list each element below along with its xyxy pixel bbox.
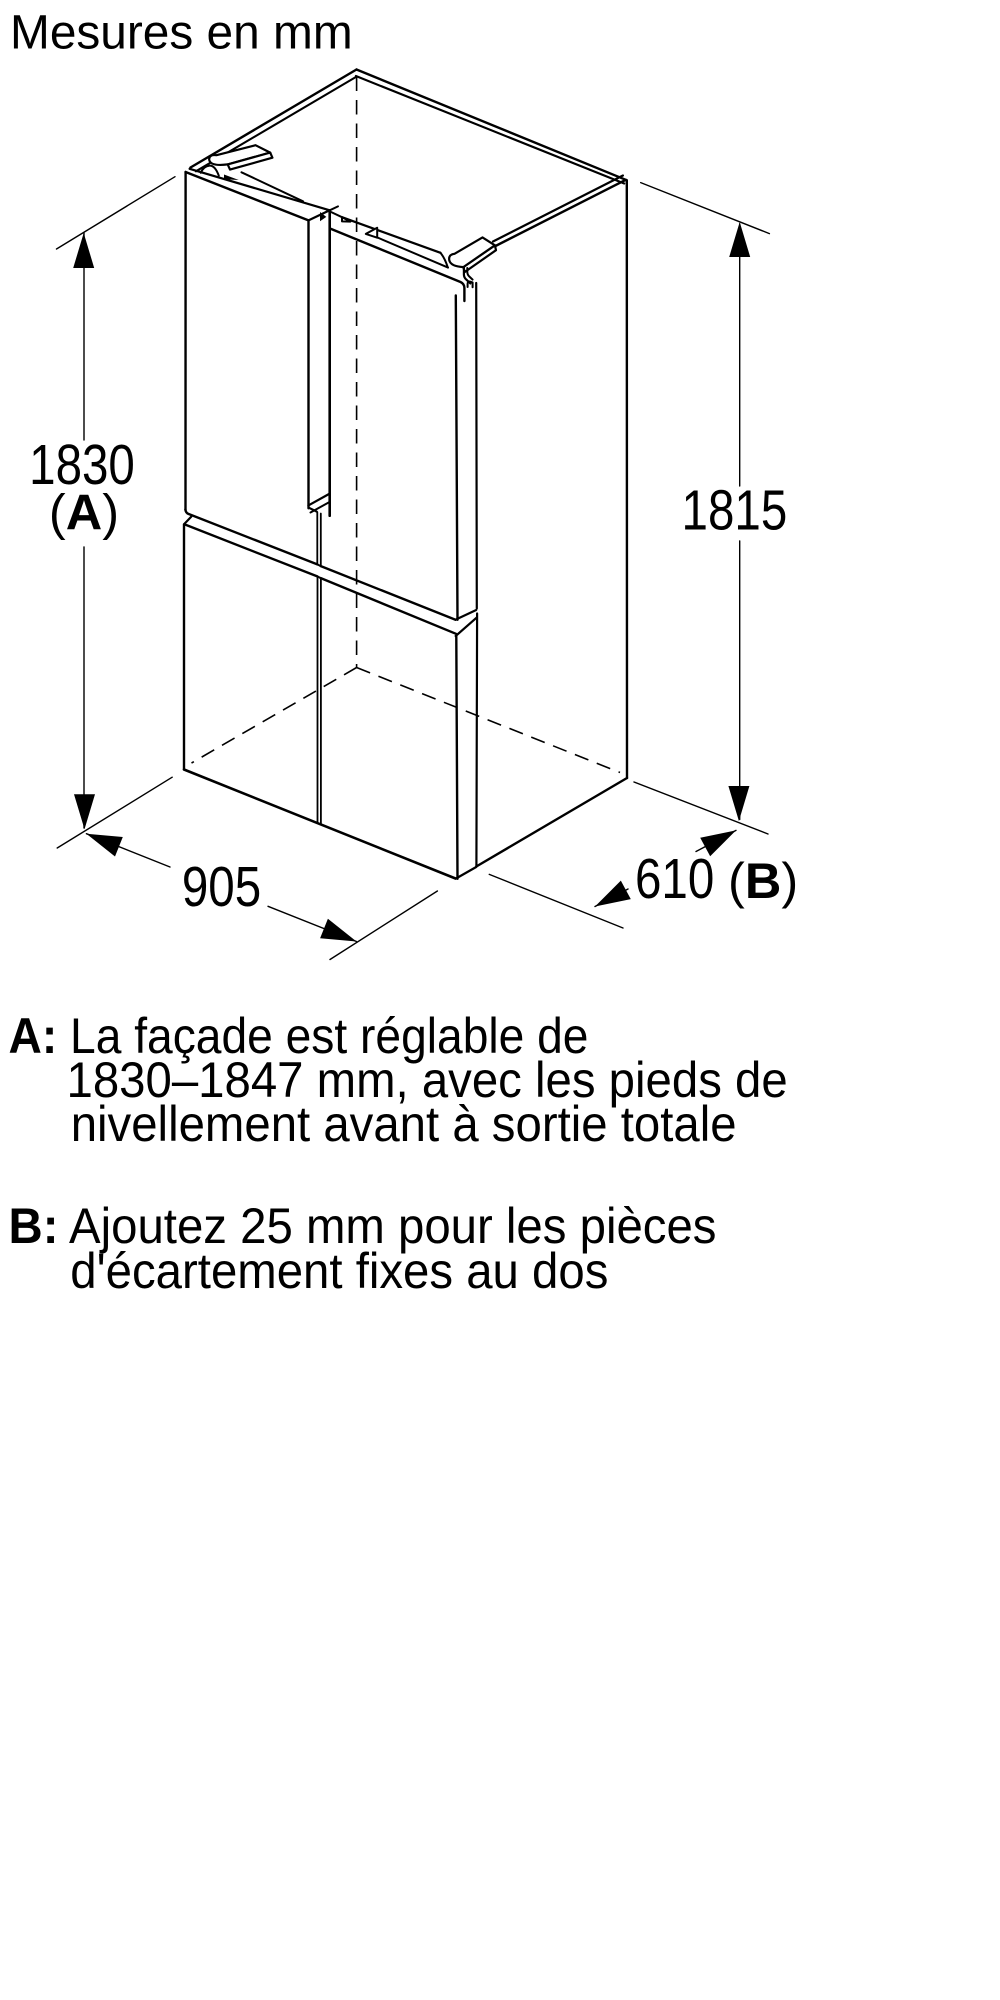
svg-text:610: 610: [635, 847, 714, 910]
svg-text:d'écartement fixes au dos: d'écartement fixes au dos: [70, 1243, 608, 1299]
svg-text:1815: 1815: [682, 479, 788, 542]
svg-text:905: 905: [182, 855, 261, 918]
svg-text:(B): (B): [728, 852, 798, 909]
svg-text:nivellement avant à sortie tot: nivellement avant à sortie totale: [71, 1096, 737, 1152]
svg-text:Mesures en mm: Mesures en mm: [10, 7, 353, 60]
svg-text:(A): (A): [49, 484, 119, 541]
